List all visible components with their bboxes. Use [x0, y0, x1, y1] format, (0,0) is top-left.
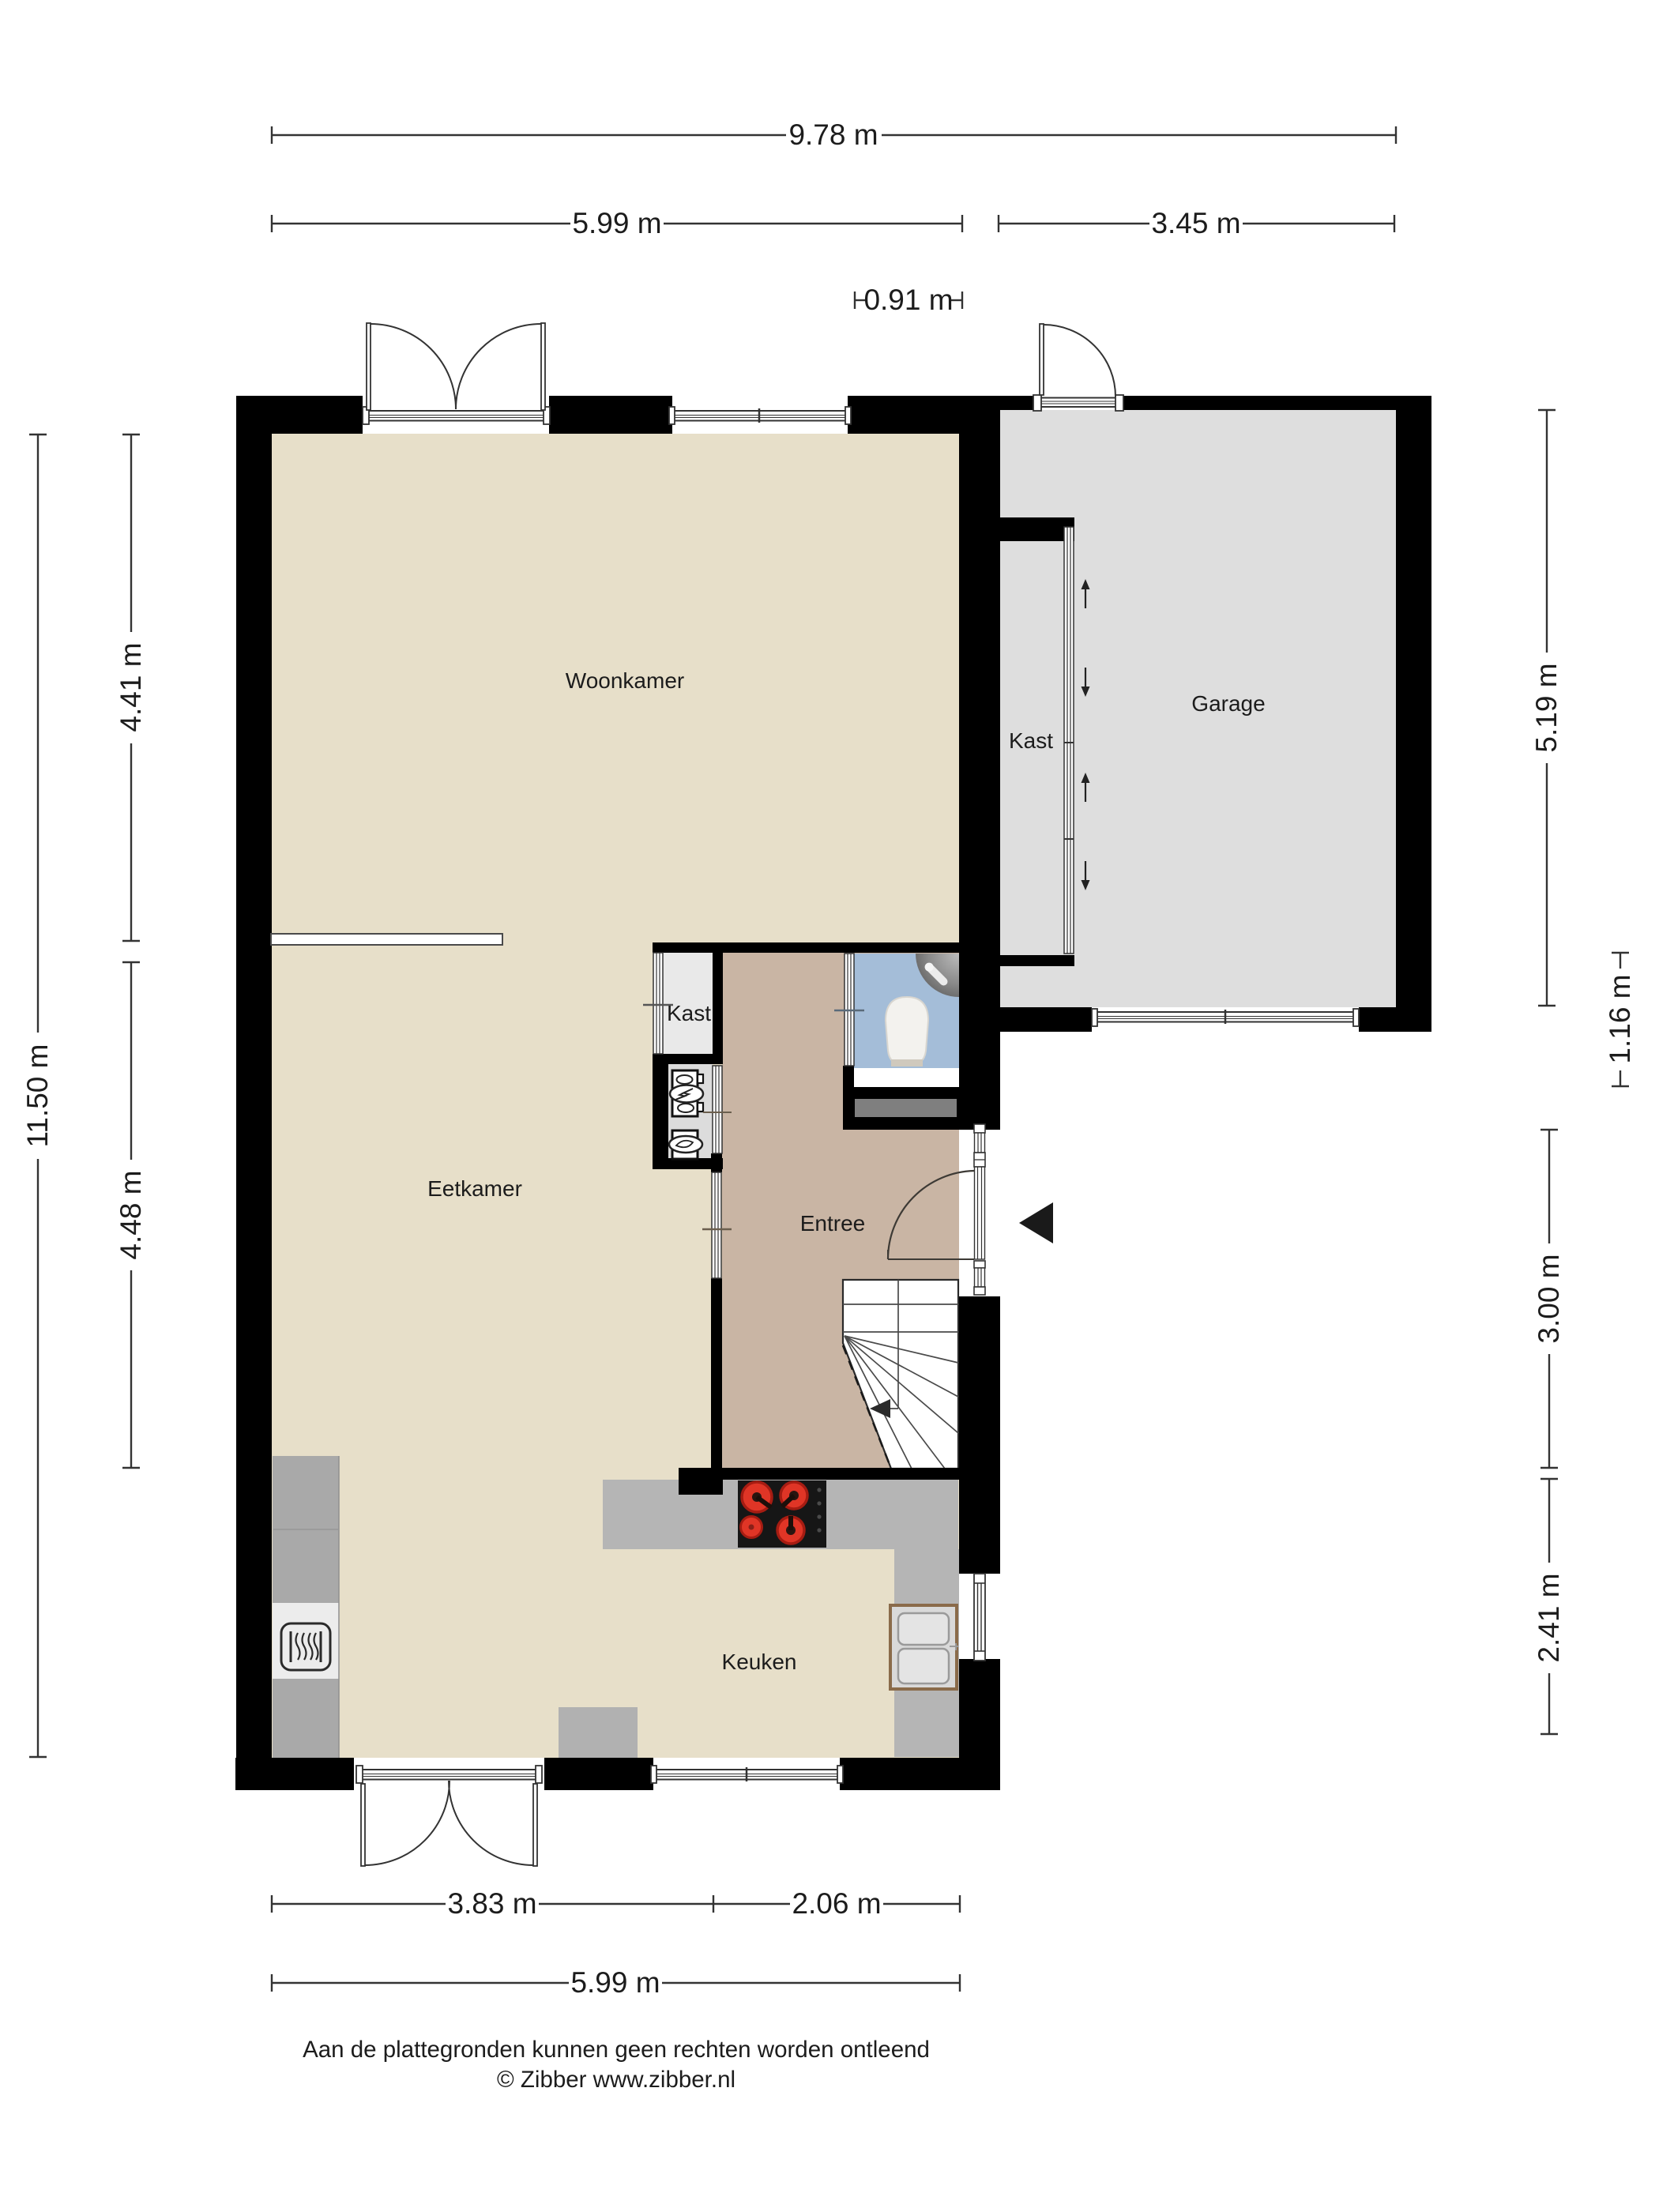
- svg-text:11.50 m: 11.50 m: [21, 1044, 54, 1148]
- svg-text:0.91 m: 0.91 m: [863, 284, 953, 316]
- svg-text:5.19 m: 5.19 m: [1530, 663, 1563, 752]
- svg-text:Entree: Entree: [800, 1211, 866, 1236]
- svg-text:2.41 m: 2.41 m: [1533, 1573, 1565, 1662]
- svg-text:2.06 m: 2.06 m: [792, 1887, 881, 1920]
- svg-text:Kast: Kast: [667, 1001, 711, 1025]
- svg-text:Kast: Kast: [1009, 728, 1053, 753]
- svg-text:Eetkamer: Eetkamer: [427, 1176, 522, 1201]
- svg-text:Woonkamer: Woonkamer: [566, 668, 684, 693]
- svg-text:Garage: Garage: [1191, 691, 1265, 716]
- svg-text:© Zibber www.zibber.nl: © Zibber www.zibber.nl: [497, 2067, 735, 2093]
- svg-text:3.83 m: 3.83 m: [447, 1887, 536, 1920]
- svg-text:9.78 m: 9.78 m: [788, 118, 878, 151]
- svg-text:1.16 m: 1.16 m: [1604, 974, 1636, 1063]
- svg-text:Keuken: Keuken: [722, 1650, 797, 1674]
- svg-text:5.99 m: 5.99 m: [572, 207, 661, 239]
- svg-text:4.48 m: 4.48 m: [115, 1170, 147, 1259]
- svg-text:4.41 m: 4.41 m: [115, 642, 147, 732]
- svg-text:3.45 m: 3.45 m: [1151, 207, 1240, 239]
- svg-text:5.99 m: 5.99 m: [570, 1966, 660, 1999]
- svg-text:3.00 m: 3.00 m: [1533, 1254, 1565, 1343]
- svg-text:Aan de plattegronden kunnen ge: Aan de plattegronden kunnen geen rechten…: [303, 2037, 930, 2063]
